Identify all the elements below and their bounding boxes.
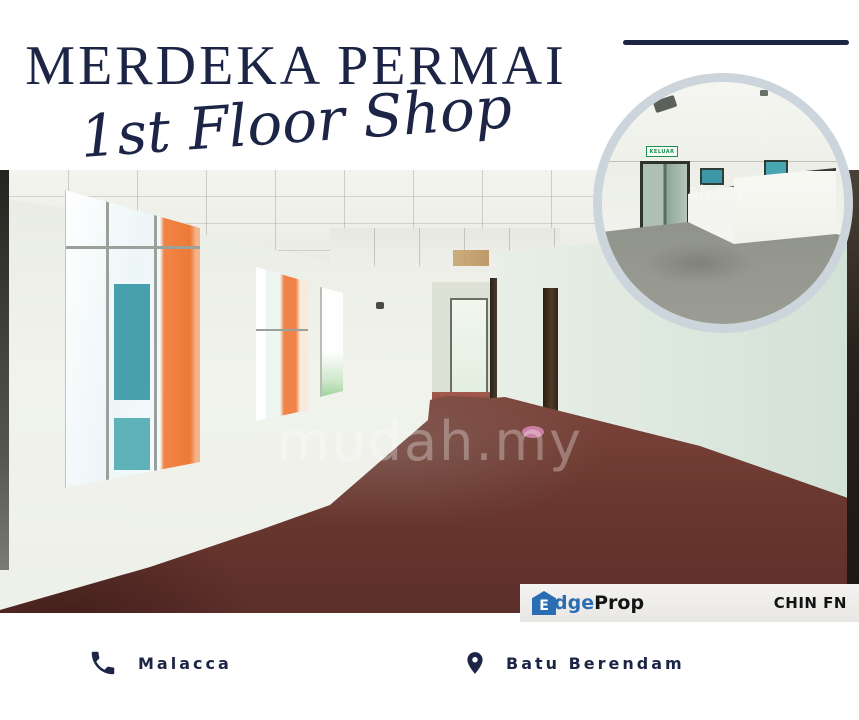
photo-right-edge — [847, 170, 859, 613]
logo-text-edge: dge — [554, 592, 594, 614]
edgeprop-logo: E dge Prop — [532, 591, 644, 615]
location-pin-icon — [462, 644, 488, 682]
inset-watermark: ah.my — [688, 182, 746, 202]
photo-left-edge — [0, 170, 9, 570]
mudah-watermark: mudah.my — [250, 410, 610, 473]
listing-flyer: MERDEKA PERMAI 1st Floor Shop mudah.my K… — [0, 0, 859, 720]
photo-missing-ceiling-tile — [453, 250, 489, 266]
photo-door-frame-left — [490, 278, 498, 406]
house-icon: E — [532, 591, 556, 615]
agent-name: CHIN FN — [774, 594, 847, 612]
inset-ceiling-lamp-small — [760, 90, 768, 96]
photo-window-narrow — [320, 285, 343, 397]
photo-wall-fixture — [376, 302, 384, 309]
inset-ceiling — [602, 82, 844, 162]
photo-corridor-door — [450, 298, 488, 396]
photo-window-second — [256, 265, 308, 421]
divider-line — [623, 40, 849, 45]
footer-state-label: Malacca — [138, 654, 232, 673]
inset-exit-sign: KELUAR — [646, 146, 678, 157]
phone-icon — [88, 648, 118, 678]
inset-photo-circle: KELUAR ah.my — [593, 73, 853, 333]
logo-text-prop: Prop — [594, 592, 644, 614]
branding-bar: E dge Prop CHIN FN — [520, 584, 859, 622]
photo-window-large — [62, 188, 204, 490]
footer-phone-item: Malacca — [88, 648, 232, 678]
footer-location-item: Batu Berendam — [462, 644, 685, 682]
footer-area-label: Batu Berendam — [506, 654, 685, 673]
